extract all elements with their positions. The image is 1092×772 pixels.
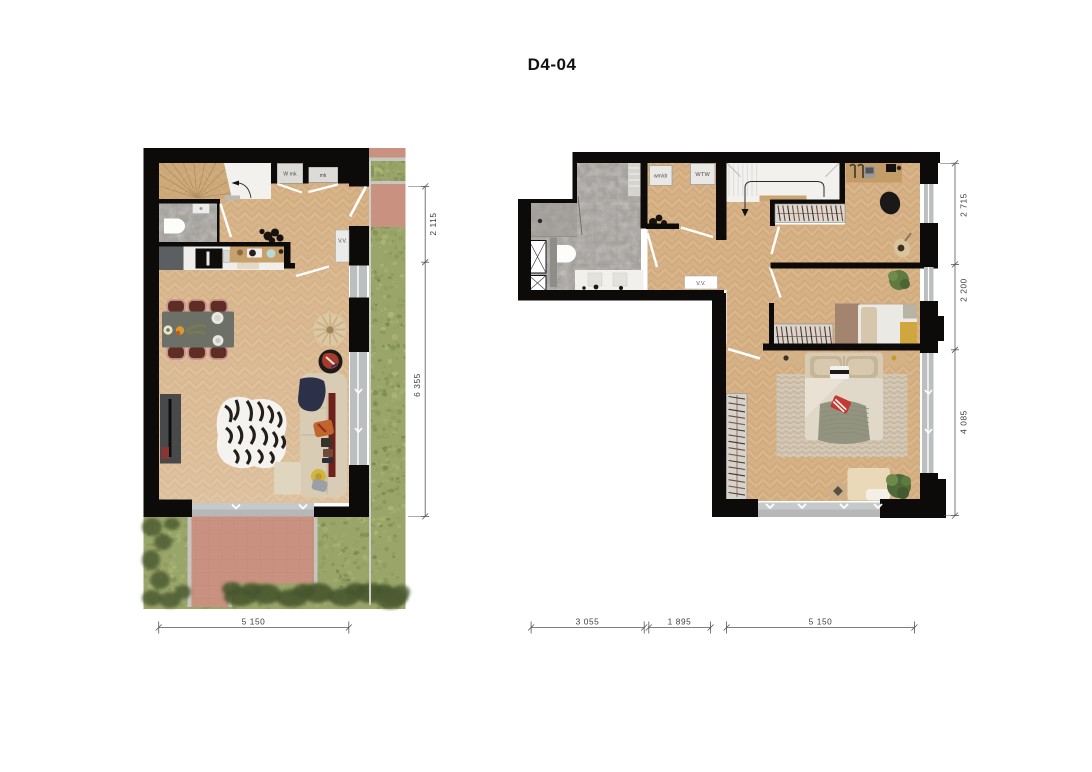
svg-text:V.V.: V.V. <box>696 281 706 287</box>
svg-text:D4-04: D4-04 <box>528 55 577 74</box>
svg-text:6 355: 6 355 <box>412 373 422 397</box>
svg-text:5 150: 5 150 <box>809 617 833 627</box>
svg-text:3 055: 3 055 <box>576 617 600 627</box>
svg-text:W mk: W mk <box>283 172 297 178</box>
svg-text:V.V.: V.V. <box>338 239 347 245</box>
svg-text:2 115: 2 115 <box>428 212 438 235</box>
svg-text:WTW: WTW <box>695 172 710 178</box>
svg-text:mk: mk <box>320 173 327 179</box>
svg-text:2 200: 2 200 <box>959 278 969 302</box>
svg-text:1 895: 1 895 <box>668 617 692 627</box>
svg-text:wm/dr: wm/dr <box>654 174 668 180</box>
svg-text:4 085: 4 085 <box>959 410 969 434</box>
svg-text:5 150: 5 150 <box>242 617 266 627</box>
svg-text:2 715: 2 715 <box>959 193 969 217</box>
